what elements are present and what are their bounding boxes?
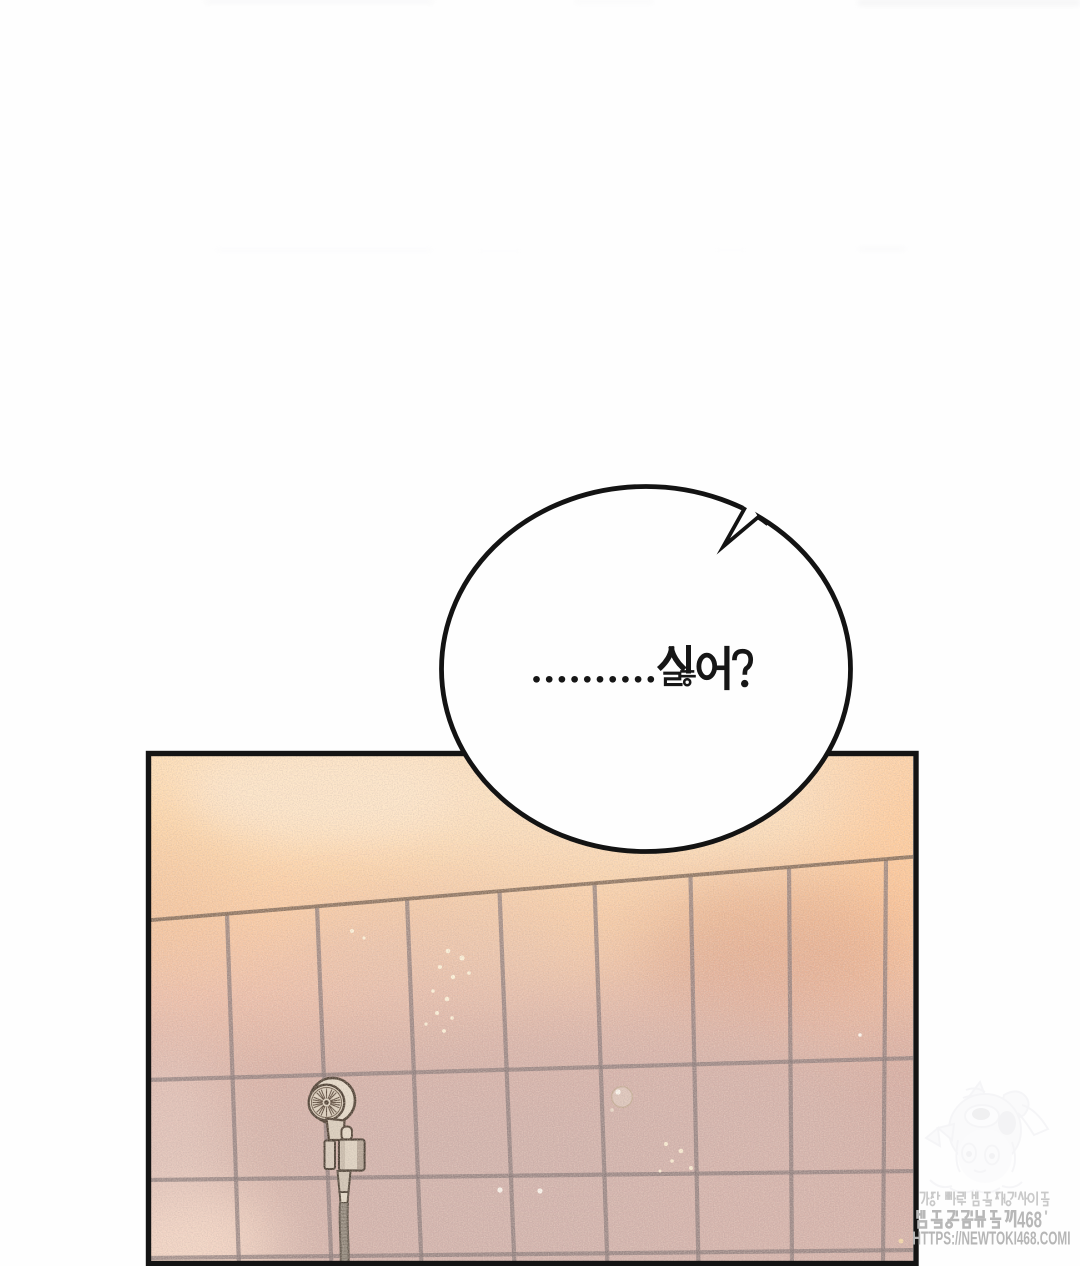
svg-text:HTTPS://NEWTOKI468.COMI: HTTPS://NEWTOKI468.COMI [913,1229,1071,1249]
svg-text:': ' [1044,1207,1048,1226]
